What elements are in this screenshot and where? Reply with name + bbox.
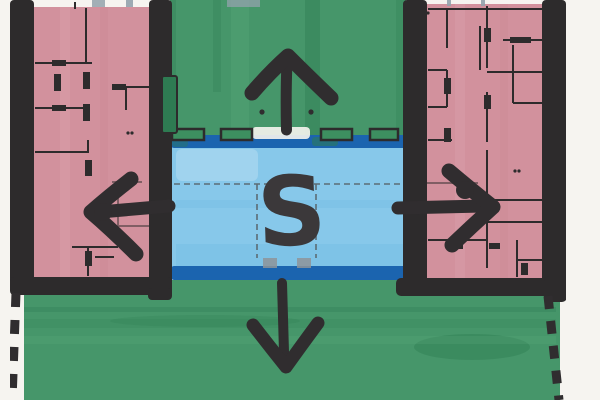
planter-box	[321, 129, 352, 140]
left-wing-east-wall	[149, 0, 172, 288]
paper-margin-right	[566, 0, 600, 400]
sketch-page: S	[0, 0, 600, 400]
planter-box	[370, 129, 398, 140]
right-wing-west-wall	[403, 0, 427, 288]
left-wing-west-wall	[10, 0, 34, 292]
right-wing-south-wall	[396, 278, 564, 296]
right-wing-east-wall	[542, 0, 566, 292]
left-wing-corner	[148, 288, 172, 300]
pond-bottom-edge	[171, 266, 407, 280]
arrow-left-blob	[94, 203, 112, 221]
left-wing-south-wall	[10, 277, 172, 295]
left-building-wing	[30, 7, 156, 281]
arrow-right-blob	[456, 181, 474, 199]
planter-box	[221, 129, 252, 140]
site-plan-sketch: S	[0, 0, 600, 400]
letter-s-label: S	[255, 155, 328, 269]
paper-margin-left	[0, 0, 10, 400]
hedge-box	[162, 76, 177, 133]
